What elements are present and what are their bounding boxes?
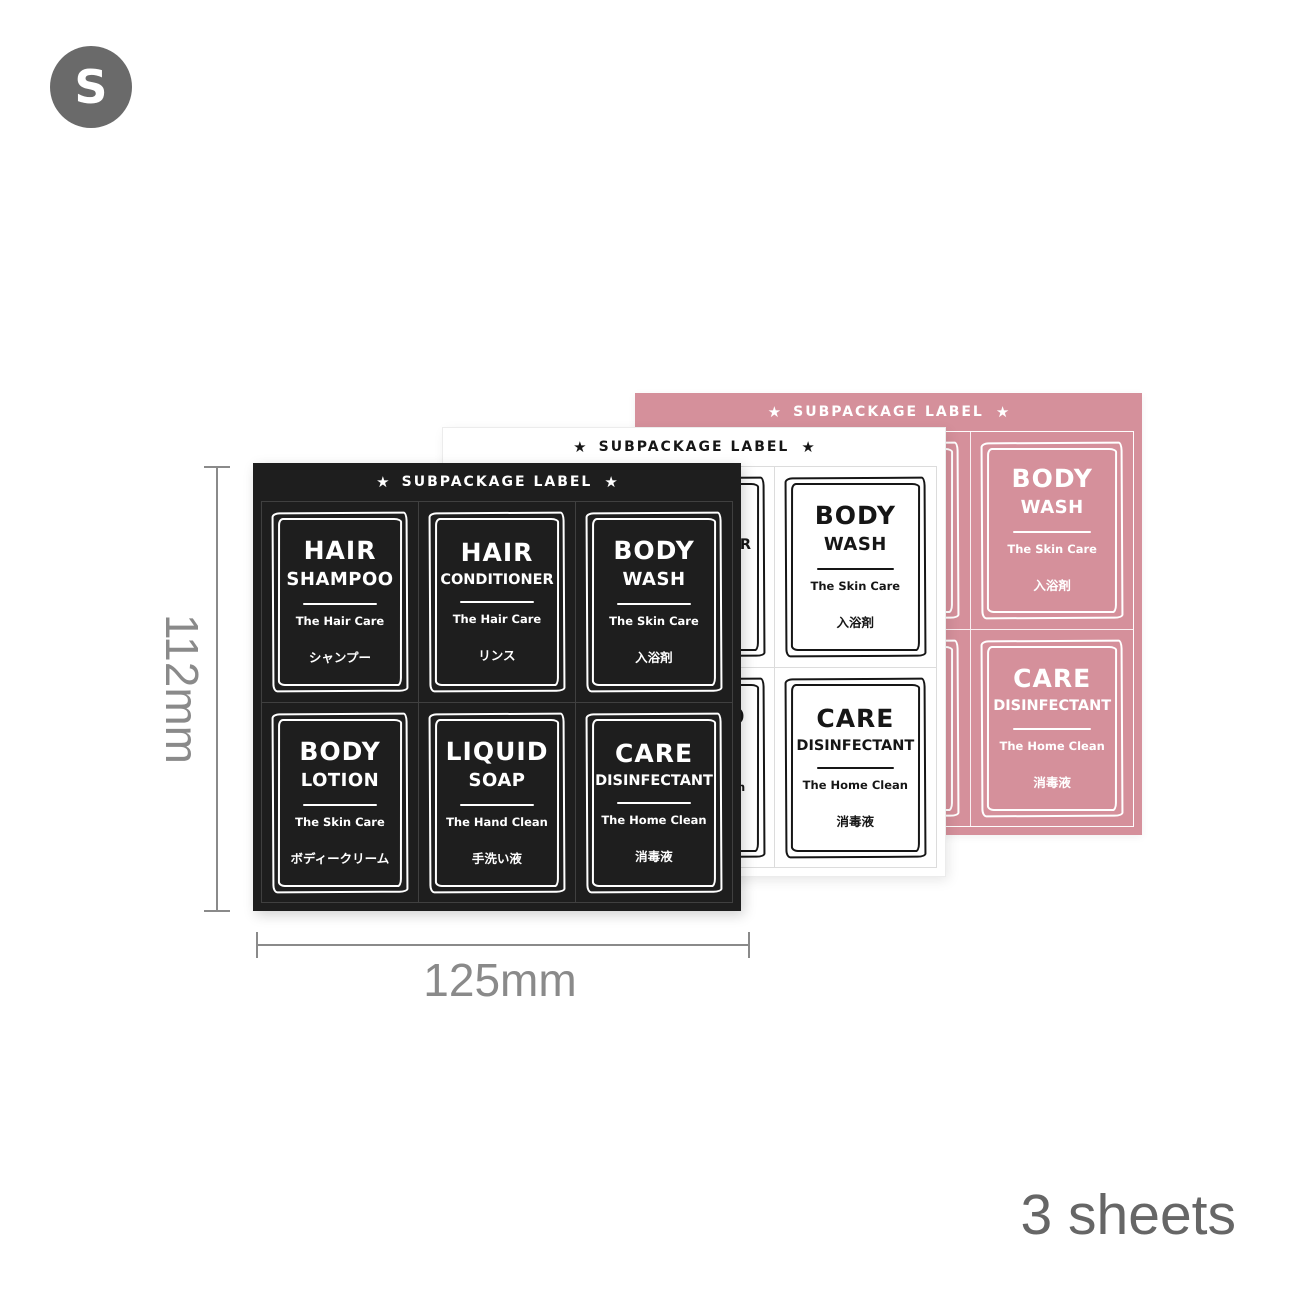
sheet-header: ★ SUBPACKAGE LABEL ★ <box>635 393 1142 431</box>
label-japanese-text: シャンプー <box>309 647 371 666</box>
label-body-wash: BODY WASH The Skin Care 入浴剤 <box>980 442 1123 619</box>
size-badge: S <box>50 46 132 128</box>
label-subtitle: The Skin Care <box>295 814 385 828</box>
sheet-header: ★ SUBPACKAGE LABEL ★ <box>253 463 741 501</box>
star-icon: ★ <box>604 473 617 491</box>
label-divider <box>617 801 691 803</box>
label-divider <box>817 568 894 570</box>
label-japanese-text: 入浴剤 <box>1033 575 1071 594</box>
sheet-header-label: SUBPACKAGE LABEL <box>599 439 790 455</box>
label-japanese-text: ボディークリーム <box>291 847 390 866</box>
label-title-line1: CARE <box>817 705 895 730</box>
label-divider <box>303 803 377 805</box>
label-frame: CARE DISINFECTANT The Home Clean 消毒液 <box>987 645 1117 810</box>
label-divider <box>1013 531 1091 533</box>
label-cell: CARE DISINFECTANT The Home Clean 消毒液 <box>971 630 1133 827</box>
label-frame: LIQUID SOAP The Hand Clean 手洗い液 <box>435 718 559 886</box>
label-subtitle: The Home Clean <box>999 738 1104 752</box>
width-dimension-line <box>256 944 750 946</box>
label-care-disinfectant: CARE DISINFECTANT The Home Clean 消毒液 <box>586 712 723 892</box>
sheet-black: ★ SUBPACKAGE LABEL ★ HAIR SHAMPOO The Ha… <box>253 463 741 911</box>
label-cell: CARE DISINFECTANT The Home Clean 消毒液 <box>775 668 936 868</box>
label-title-line2: SHAMPOO <box>286 571 393 589</box>
label-cell: CARE DISINFECTANT The Home Clean 消毒液 <box>576 703 732 903</box>
label-japanese-text: 入浴剤 <box>635 647 673 666</box>
label-title-line1: HAIR <box>461 539 534 564</box>
label-frame: CARE DISINFECTANT The Home Clean 消毒液 <box>791 683 920 851</box>
product-image: S ★ SUBPACKAGE LABEL ★ HAIR SHAMPOO The … <box>0 0 1300 1300</box>
label-title-line1: LIQUID <box>446 738 549 763</box>
label-title-line1: BODY <box>815 503 896 528</box>
label-cell: BODY WASH The Skin Care 入浴剤 <box>576 502 732 702</box>
label-japanese-text: 手洗い液 <box>472 847 522 866</box>
label-subtitle: The Home Clean <box>601 812 706 826</box>
label-hair-shampoo: HAIR SHAMPOO The Hair Care シャンプー <box>272 512 409 692</box>
label-title-line1: HAIR <box>304 538 377 563</box>
label-subtitle: The Hair Care <box>296 614 385 628</box>
label-frame: BODY WASH The Skin Care 入浴剤 <box>987 448 1117 613</box>
label-cell: LIQUID SOAP The Hand Clean 手洗い液 <box>419 703 575 903</box>
label-japanese-text: 消毒液 <box>1033 771 1071 790</box>
label-subtitle: The Hair Care <box>453 612 542 626</box>
label-care-disinfectant: CARE DISINFECTANT The Home Clean 消毒液 <box>980 639 1123 816</box>
label-liquid-soap: LIQUID SOAP The Hand Clean 手洗い液 <box>429 712 566 892</box>
label-divider <box>817 766 894 768</box>
label-care-disinfectant: CARE DISINFECTANT The Home Clean 消毒液 <box>785 677 927 857</box>
label-hair-conditioner: HAIR CONDITIONER The Hair Care リンス <box>429 512 566 692</box>
label-title-line2: WASH <box>1020 499 1083 517</box>
label-frame: BODY LOTION The Skin Care ボディークリーム <box>278 718 402 886</box>
label-divider <box>1013 727 1091 729</box>
sheet-header: ★ SUBPACKAGE LABEL ★ <box>443 428 945 466</box>
label-title-line2: LOTION <box>301 771 380 789</box>
label-title-line2: SOAP <box>469 771 526 789</box>
star-icon: ★ <box>996 403 1009 421</box>
label-subtitle: The Skin Care <box>609 614 699 628</box>
label-japanese-text: 消毒液 <box>635 845 673 864</box>
label-frame: HAIR CONDITIONER The Hair Care リンス <box>435 518 559 686</box>
label-title-line2: DISINFECTANT <box>797 738 915 753</box>
height-dimension-label: 112mm <box>156 579 208 799</box>
label-subtitle: The Skin Care <box>1007 542 1097 556</box>
label-divider <box>460 803 534 805</box>
height-dimension-line <box>216 466 218 912</box>
label-frame: HAIR SHAMPOO The Hair Care シャンプー <box>278 518 402 686</box>
star-icon: ★ <box>573 438 586 456</box>
sheet-count-label: 3 sheets <box>940 1182 1236 1248</box>
label-title-line1: BODY <box>299 738 380 763</box>
label-cell: HAIR CONDITIONER The Hair Care リンス <box>419 502 575 702</box>
label-cell: BODY WASH The Skin Care 入浴剤 <box>971 432 1133 629</box>
label-body-lotion: BODY LOTION The Skin Care ボディークリーム <box>272 712 409 892</box>
label-body-wash: BODY WASH The Skin Care 入浴剤 <box>785 477 927 657</box>
label-title-line1: CARE <box>1013 665 1091 690</box>
label-cell: BODY LOTION The Skin Care ボディークリーム <box>262 703 418 903</box>
label-title-line2: WASH <box>824 536 887 554</box>
label-title-line2: DISINFECTANT <box>993 698 1111 713</box>
star-icon: ★ <box>376 473 389 491</box>
label-title-line2: CONDITIONER <box>440 572 553 587</box>
label-cell: BODY WASH The Skin Care 入浴剤 <box>775 467 936 667</box>
label-subtitle: The Home Clean <box>803 777 908 791</box>
label-grid: HAIR SHAMPOO The Hair Care シャンプー HAIR CO… <box>261 501 733 903</box>
label-title-line2: DISINFECTANT <box>595 773 713 788</box>
label-title-line1: BODY <box>1011 466 1092 491</box>
label-japanese-text: 入浴剤 <box>837 612 875 631</box>
label-title-line1: BODY <box>613 538 694 563</box>
star-icon: ★ <box>801 438 814 456</box>
label-title-line2: WASH <box>622 571 685 589</box>
label-cell: HAIR SHAMPOO The Hair Care シャンプー <box>262 502 418 702</box>
label-frame: BODY WASH The Skin Care 入浴剤 <box>791 483 920 651</box>
label-divider <box>617 603 691 605</box>
label-frame: BODY WASH The Skin Care 入浴剤 <box>592 518 716 686</box>
label-body-wash: BODY WASH The Skin Care 入浴剤 <box>586 512 723 692</box>
sheet-header-label: SUBPACKAGE LABEL <box>793 404 984 420</box>
label-frame: CARE DISINFECTANT The Home Clean 消毒液 <box>592 718 716 886</box>
label-japanese-text: 消毒液 <box>837 810 875 829</box>
label-divider <box>460 601 534 603</box>
label-subtitle: The Skin Care <box>811 579 901 593</box>
label-divider <box>303 603 377 605</box>
label-subtitle: The Hand Clean <box>446 814 548 828</box>
star-icon: ★ <box>768 403 781 421</box>
label-japanese-text: リンス <box>478 645 515 664</box>
size-badge-letter: S <box>74 60 107 114</box>
width-dimension-label: 125mm <box>350 953 650 1007</box>
sheet-header-label: SUBPACKAGE LABEL <box>402 474 593 490</box>
label-title-line1: CARE <box>615 740 693 765</box>
